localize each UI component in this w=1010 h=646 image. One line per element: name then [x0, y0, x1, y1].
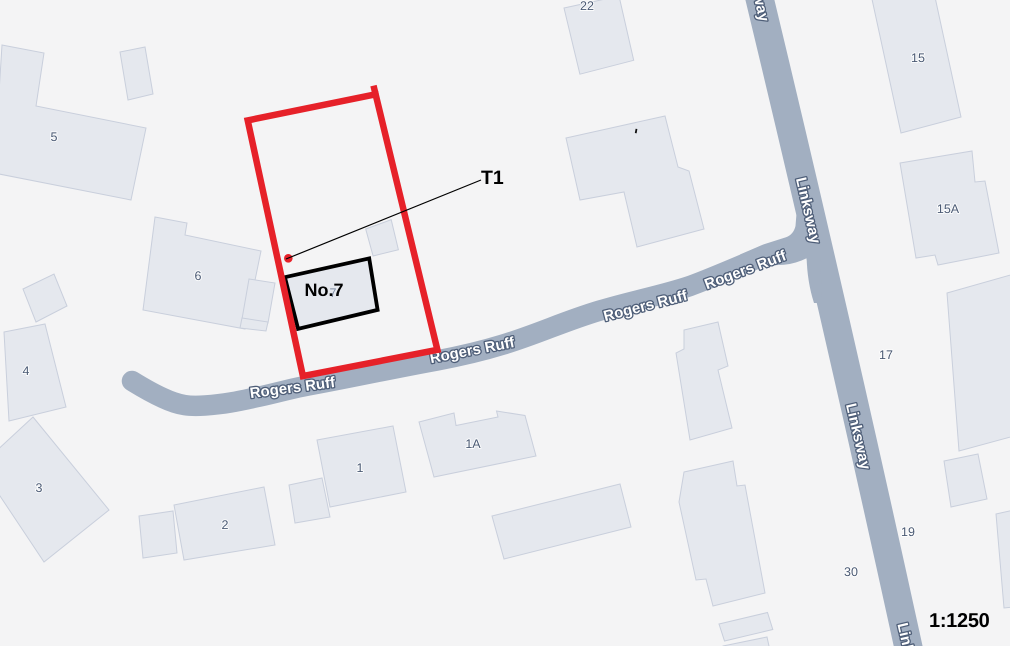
svg-text:4: 4 [23, 364, 30, 378]
svg-text:1: 1 [357, 461, 364, 475]
svg-text:22: 22 [580, 0, 594, 13]
svg-text:5: 5 [51, 130, 58, 144]
svg-text:T1: T1 [481, 167, 504, 189]
svg-text:15: 15 [911, 51, 925, 65]
svg-text:15A: 15A [937, 202, 960, 216]
svg-text:No.7: No.7 [304, 280, 343, 300]
svg-text:6: 6 [195, 269, 202, 283]
svg-text:3: 3 [36, 481, 43, 495]
svg-text:1:1250: 1:1250 [929, 610, 990, 632]
svg-text:2: 2 [222, 518, 229, 532]
svg-text:1A: 1A [465, 437, 481, 451]
svg-text:17: 17 [879, 348, 893, 362]
svg-text:30: 30 [844, 565, 858, 579]
svg-text:19: 19 [901, 525, 915, 539]
